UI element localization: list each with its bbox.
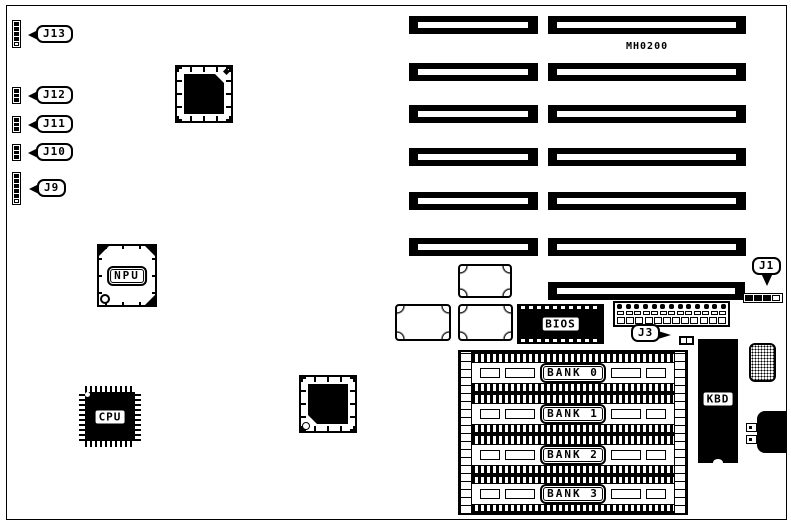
- pin-dot-icon: [634, 304, 639, 309]
- slot-opening: [418, 69, 528, 75]
- pin-pad-icon: [651, 311, 658, 315]
- pin-square-icon: [709, 317, 717, 324]
- pin-pad-icon: [702, 311, 709, 315]
- callout-tail-icon: [28, 148, 38, 158]
- pin-dot-icon: [721, 304, 726, 309]
- simm-slot-icon: [505, 368, 535, 378]
- callout-tail-icon: [28, 91, 38, 101]
- slot-opening: [418, 111, 528, 117]
- pin-dot-icon: [643, 304, 648, 309]
- pin-pad-icon: [660, 311, 667, 315]
- simm-slot-icon: [480, 368, 500, 378]
- simm-socket-block: BANK 0 BANK 1 BANK 2: [458, 350, 688, 515]
- isa-slot-long: [548, 192, 746, 210]
- pin-square-icon: [654, 317, 662, 324]
- pin-pad-icon: [668, 311, 675, 315]
- simm-slot-icon: [611, 450, 641, 460]
- pin-header-j13: [12, 20, 21, 48]
- pin-dot-icon: [678, 304, 683, 309]
- isa-slot-short: [409, 192, 538, 210]
- pin-dot-icon: [704, 304, 709, 309]
- slot-opening: [557, 111, 736, 117]
- pin-square-icon: [617, 317, 625, 324]
- corner-mark-icon: [145, 295, 155, 305]
- pin-dot-icon: [626, 304, 631, 309]
- simm-pins: [472, 465, 674, 476]
- simm-pins: [472, 504, 674, 513]
- pin-square-icon: [626, 317, 634, 324]
- bank-label: BANK 1: [540, 404, 606, 424]
- slot-opening: [557, 288, 735, 294]
- corner-mark-icon: [99, 246, 109, 256]
- j3-jumper: [679, 336, 694, 345]
- pin-dot-icon: [617, 304, 622, 309]
- cpu-chip: CPU: [79, 386, 141, 447]
- pin-pad-icon: [711, 311, 718, 315]
- callout-j13: J13: [36, 25, 73, 43]
- isa-slot-long: [548, 282, 745, 300]
- pin-pad-icon: [626, 311, 633, 315]
- pin-square-icon: [690, 317, 698, 324]
- callout-tail-icon: [28, 120, 38, 130]
- pin-header-j9: [12, 172, 21, 205]
- callout-j10: J10: [36, 143, 73, 161]
- pin-dot-icon: [669, 304, 674, 309]
- callout-tail-icon: [761, 273, 773, 286]
- pin-dot-icon: [712, 304, 717, 309]
- slot-opening: [557, 22, 736, 28]
- slot-opening: [557, 69, 736, 75]
- simm-slot-icon: [611, 368, 641, 378]
- simm-pins: [472, 352, 674, 363]
- isa-slot-short: [409, 16, 538, 34]
- oscillator: [458, 264, 512, 298]
- slot-opening: [418, 22, 528, 28]
- pin-square-icon: [681, 317, 689, 324]
- pin1-circle-icon: [302, 422, 310, 430]
- oscillator: [458, 304, 513, 341]
- slot-opening: [418, 198, 528, 204]
- bios-chip: BIOS: [517, 304, 604, 344]
- oscillator: [395, 304, 451, 341]
- simm-slot-icon: [646, 450, 666, 460]
- callout-j1: J1: [752, 257, 781, 275]
- pin-dot-icon: [660, 304, 665, 309]
- isa-slot-long: [548, 105, 746, 123]
- pin-header-j12: [12, 87, 21, 104]
- pin-dot-icon: [695, 304, 700, 309]
- memory-bank-1: BANK 1: [472, 393, 674, 434]
- simm-slot-icon: [646, 368, 666, 378]
- isa-slot-long: [548, 63, 746, 81]
- callout-j11: J11: [36, 115, 73, 133]
- pin-header-j10: [12, 144, 21, 161]
- chip-die: [308, 384, 348, 424]
- npu-socket: NPU: [97, 244, 157, 307]
- pin-pad-icon: [677, 311, 684, 315]
- berg-pin-connector: [613, 301, 730, 327]
- din-pin-icon: [746, 423, 757, 432]
- pin-row-dots: [617, 304, 726, 309]
- pin-pad-icon: [617, 311, 624, 315]
- simm-slot-icon: [505, 409, 535, 419]
- isa-slot-long: [548, 148, 746, 166]
- board-id-text: MH0200: [626, 41, 668, 52]
- pin-pad-icon: [685, 311, 692, 315]
- memory-bank-2: BANK 2: [472, 434, 674, 475]
- slot-opening: [418, 154, 528, 160]
- bank-label: BANK 0: [540, 363, 606, 383]
- pin1-circle-icon: [100, 294, 110, 304]
- kbd-label: KBD: [703, 392, 734, 407]
- isa-slot-short: [409, 238, 538, 256]
- pin-dot-icon: [652, 304, 657, 309]
- pin-square-icon: [700, 317, 708, 324]
- qfp-chip-bottom: [299, 375, 357, 433]
- pin-row-mid: [617, 311, 726, 315]
- simm-slot-icon: [505, 489, 535, 499]
- bios-label: BIOS: [541, 317, 580, 332]
- simm-slot-icon: [611, 409, 641, 419]
- slot-opening: [418, 244, 528, 250]
- callout-tail-icon: [29, 184, 39, 194]
- callout-tail-icon: [658, 331, 671, 339]
- keyboard-controller-chip: KBD: [698, 339, 738, 463]
- simm-slot-icon: [646, 409, 666, 419]
- pin-header-j1: [743, 293, 783, 303]
- memory-bank-0: BANK 0: [472, 352, 674, 393]
- din-pin-icon: [746, 435, 757, 444]
- callout-j3: J3: [631, 324, 660, 342]
- isa-slot-short: [409, 148, 538, 166]
- simm-rail-right: [674, 352, 686, 513]
- cpu-label: CPU: [95, 409, 126, 424]
- simm-slot-icon: [611, 489, 641, 499]
- crystal-icon: [749, 343, 776, 382]
- pin-pad-icon: [719, 311, 726, 315]
- simm-slot-icon: [480, 409, 500, 419]
- bank-label: BANK 2: [540, 445, 606, 465]
- slot-opening: [557, 198, 736, 204]
- simm-pins: [472, 424, 674, 435]
- pin-square-icon: [672, 317, 680, 324]
- isa-slot-short: [409, 105, 538, 123]
- pin-pad-icon: [694, 311, 701, 315]
- simm-pins: [472, 393, 674, 404]
- simm-slot-icon: [646, 489, 666, 499]
- pin-square-icon: [718, 317, 726, 324]
- simm-pins: [472, 434, 674, 445]
- pin-square-icon: [645, 317, 653, 324]
- motherboard-diagram: MH0200 J13 J12 J11 J10 J9 NPU CPU: [0, 0, 791, 527]
- pin-header-j11: [12, 116, 21, 133]
- callout-tail-icon: [28, 30, 38, 40]
- simm-slot-icon: [505, 450, 535, 460]
- simm-pins: [472, 475, 674, 484]
- bank-label: BANK 3: [540, 484, 606, 504]
- simm-rail-left: [460, 352, 472, 513]
- pin-square-icon: [635, 317, 643, 324]
- qfp-chip-top: [175, 65, 233, 123]
- pin-pad-icon: [634, 311, 641, 315]
- slot-opening: [557, 244, 736, 250]
- npu-label: NPU: [107, 266, 147, 286]
- din-keyboard-connector: [757, 411, 787, 453]
- pin-dot-icon: [686, 304, 691, 309]
- pin1-dot-icon: [85, 392, 90, 397]
- pin-pad-icon: [643, 311, 650, 315]
- callout-j12: J12: [36, 86, 73, 104]
- chip-die: [184, 74, 224, 114]
- simm-slot-icon: [480, 489, 500, 499]
- pin1-arrow-icon: [223, 68, 230, 75]
- simm-pins: [472, 383, 674, 394]
- pin-square-icon: [663, 317, 671, 324]
- isa-slot-long: [548, 16, 746, 34]
- simm-slot-icon: [480, 450, 500, 460]
- isa-slot-long: [548, 238, 746, 256]
- pin-row-squares: [617, 317, 726, 324]
- isa-slot-short: [409, 63, 538, 81]
- memory-bank-3: BANK 3: [472, 475, 674, 513]
- slot-opening: [557, 154, 736, 160]
- callout-j9: J9: [37, 179, 66, 197]
- corner-mark-icon: [145, 246, 155, 256]
